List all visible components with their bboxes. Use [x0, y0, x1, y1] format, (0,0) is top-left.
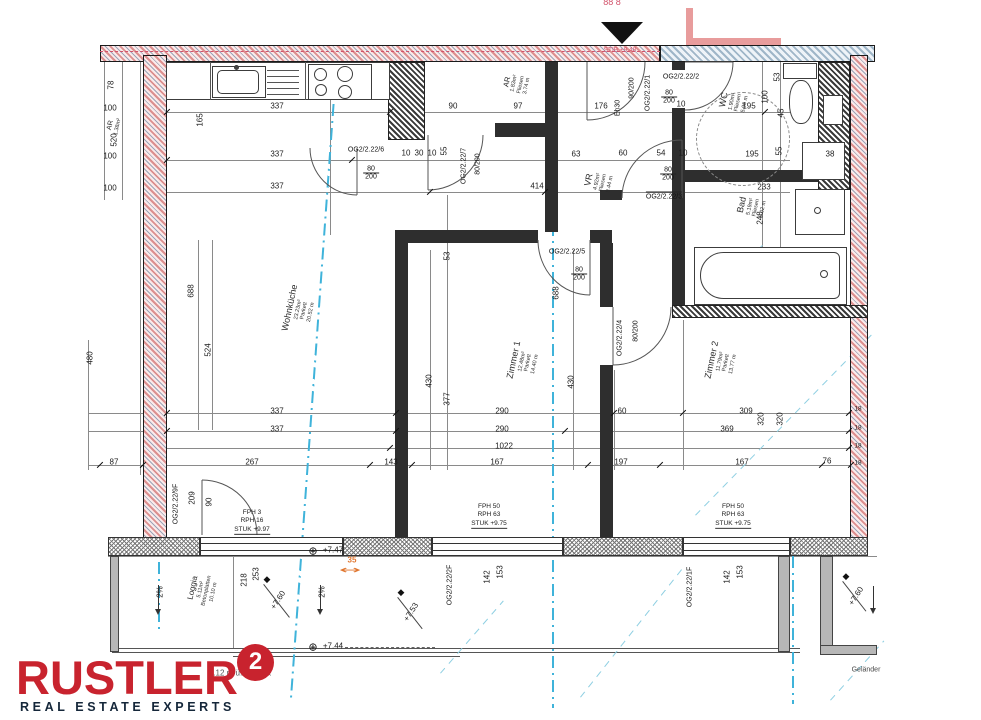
closet-shaft [388, 62, 425, 140]
door-size: 80200 [661, 90, 677, 105]
window-1f [683, 537, 790, 556]
room-wohnkueche: Wohnküche23.23m²Parkett20.52 m [281, 284, 320, 337]
wall-right [850, 55, 868, 545]
fph-block-mid: FPH 50RPH 63STUK +9.75 [471, 503, 507, 529]
logo-brand: RUSTLER [16, 650, 238, 705]
height-marker-icon: ◆ [398, 588, 405, 598]
level-marker-icon: ⊕ [308, 545, 317, 558]
wall-left [143, 55, 167, 545]
window-2f [432, 537, 563, 556]
offset-arrow-icon: ↔ [339, 564, 361, 577]
logo-tagline: REAL ESTATE EXPERTS [20, 700, 235, 714]
dimension: 78 [107, 81, 116, 90]
loggia-door-opening [200, 537, 343, 556]
level-marker-icon: ⊕ [308, 641, 317, 654]
height-marker-icon: ◆ [843, 572, 850, 582]
door-size: 90/200 [629, 77, 636, 98]
shaft-box [802, 142, 845, 180]
entrance-marker-icon [601, 22, 643, 44]
door-arc-kitchen [310, 148, 357, 195]
slope-label: 2% [318, 586, 327, 598]
fph-block-left: FPH 3RPH 16STUK +9.97 [234, 509, 270, 535]
room-zimmer1: Zimmer 112.48m²Parkett14.40 m [506, 340, 543, 383]
wall-top-right [660, 45, 875, 62]
window-label: OG2/2.22/2F [447, 565, 454, 605]
sink-tap [234, 65, 239, 70]
window-label: OG2/2.22/1F [687, 567, 694, 607]
height-marker-icon: ◆ [264, 575, 271, 585]
room-loggia: Loggia5.11m²Betonplatten10.10 m [186, 572, 220, 608]
slope-label: 2% [156, 586, 165, 598]
wc-cistern [783, 63, 817, 79]
gelaender-note: Geländer [852, 667, 881, 674]
stair-level-text: STIB +9.48 [604, 47, 637, 54]
room-vr: VR4.92m²Fliesen9.44 m [583, 170, 616, 194]
wall-top [100, 45, 660, 62]
door-label: OG2/2.22/1 [645, 75, 652, 111]
clipped-red-text: 88 8 [603, 0, 621, 7]
room-ar: AR1.83m²Fliesen3.74 m [501, 72, 532, 95]
room-zimmer2: Zimmer 211.79m²Parkett13.77 m [704, 340, 741, 383]
level-text: +7.47 [323, 546, 343, 555]
logo-superscript-icon: 2 [237, 644, 274, 681]
fire-rating: Eh30 [615, 100, 622, 116]
sink-drainer [267, 70, 299, 96]
wc-toilet [789, 80, 813, 124]
fph-block-right: FPH 50RPH 63STUK +9.75 [715, 503, 751, 529]
slope-arrow-icon [873, 586, 874, 612]
floorplan: 88 8 STIB +9.48 Wohnküche23.23m²Parkett2… [0, 0, 981, 720]
